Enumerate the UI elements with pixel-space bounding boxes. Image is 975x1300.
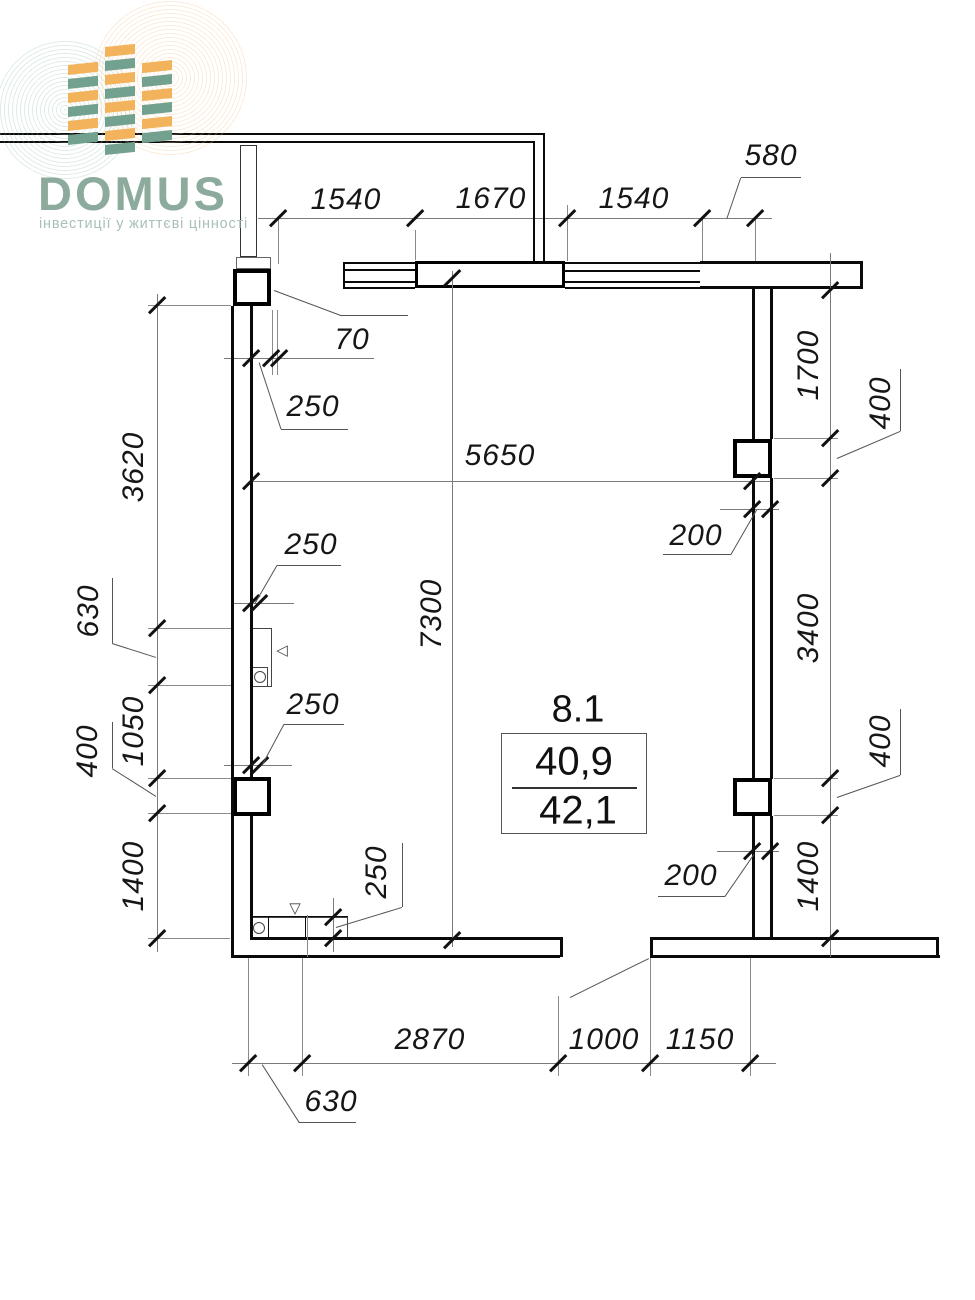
shelf-200l [658, 896, 725, 897]
dim-room-height: 7300 [415, 579, 449, 650]
wall-top-right-cap [860, 261, 863, 289]
dim-wall-bottom: 250 [360, 845, 394, 898]
dim-bottom-4: 630 [304, 1085, 357, 1119]
ext-t2 [415, 230, 416, 260]
room-area-lower: 42,1 [539, 789, 617, 834]
column-left-lower [233, 777, 271, 816]
shelf-70 [341, 315, 408, 316]
leader-630b [261, 1064, 299, 1123]
dimline-left [157, 294, 158, 952]
ext-70b [277, 310, 278, 375]
ext-t1 [278, 218, 279, 264]
ext-b5 [750, 958, 751, 1076]
shelf-250b [402, 843, 403, 907]
wall-bottom-left-outer [231, 955, 560, 958]
partition-inner-b [770, 478, 773, 779]
wall-bottom-right-cap [650, 937, 653, 957]
dim-left-5: 1400 [117, 841, 151, 912]
dimline-bottom [232, 1063, 776, 1064]
shelf-250m [277, 565, 341, 566]
dimline-top [258, 218, 772, 219]
wall-bottom-right-outer [650, 955, 940, 958]
dim-right-5: 1400 [792, 841, 826, 912]
logo-tagline: інвестиції у життєві цінності [39, 216, 248, 232]
wall-left-inner-a [250, 306, 253, 777]
shelf-400l [112, 722, 113, 768]
balcony-right-inner [533, 141, 535, 262]
shelf-630b [299, 1122, 356, 1123]
partition-outer-a [752, 288, 755, 439]
shelf-250u [281, 429, 348, 430]
shelf-580 [741, 177, 801, 178]
wall-bottom-left-inner [250, 937, 560, 940]
ext-b1 [248, 958, 249, 1076]
dim-top-3: 1540 [599, 182, 670, 216]
ext-l4 [148, 778, 233, 779]
balcony-right-outer [543, 133, 545, 262]
dim-right-2: 400 [864, 376, 898, 429]
column-top-left [233, 269, 271, 306]
column-right-upper [733, 439, 772, 478]
wall-top-right-inner [700, 286, 860, 289]
dim-partition-upper: 200 [669, 519, 722, 553]
window1-l3 [343, 281, 415, 283]
wall-left-inner-b [250, 816, 253, 938]
dim-top-2: 1670 [456, 182, 527, 216]
ext-l2 [148, 628, 233, 629]
dim-bottom-1: 2870 [395, 1023, 466, 1057]
room-number: 8.1 [552, 689, 605, 732]
leader-400ru [837, 431, 901, 459]
dim-left-2: 630 [72, 584, 106, 637]
dimline-room-width [251, 481, 770, 482]
wall-bottom-left-cap [560, 937, 563, 957]
window1-l2 [343, 269, 415, 271]
ext-l6 [148, 938, 230, 939]
ext-b4 [650, 958, 651, 1076]
leader-400rl [837, 775, 901, 798]
leader-200l [724, 854, 754, 897]
dim-partition-lower: 200 [664, 859, 717, 893]
shelf-400rl [900, 709, 901, 775]
shelf-200u [663, 554, 731, 555]
fixture-divider-2 [305, 917, 306, 938]
dim-wall-upper: 250 [286, 390, 339, 424]
leader-door-opening [570, 958, 649, 998]
leader-250l [261, 724, 284, 766]
wall-bottom-right-inner [650, 937, 938, 940]
wall-left-outer [231, 306, 234, 957]
floor-plan-canvas: DOMUS інвестиції у життєві цінності ◁ ▽ … [0, 0, 975, 1300]
dim-right-3: 3400 [792, 593, 826, 664]
riser-sill [236, 257, 271, 269]
leader-580 [726, 178, 741, 219]
ext-t4 [702, 218, 703, 261]
dim-top-1: 1540 [311, 183, 382, 217]
window2-l3 [565, 281, 700, 283]
window1-l4 [343, 287, 415, 289]
partition-inner-c [770, 816, 773, 938]
dim-wall-middle: 250 [284, 528, 337, 562]
dim-column-offset: 70 [334, 323, 369, 357]
window1-l1 [343, 262, 415, 264]
ext-t5 [755, 218, 756, 261]
dim-room-width: 5650 [465, 439, 536, 473]
ext-l1 [148, 305, 231, 306]
window2-l2 [565, 270, 700, 272]
room-area-upper: 40,9 [535, 740, 613, 785]
dimline-room-height [452, 271, 453, 947]
building-icon [58, 38, 188, 173]
shelf-400ru [900, 369, 901, 431]
window1-cap [343, 262, 345, 289]
dim-top-4: 580 [744, 139, 797, 173]
shelf-250l [284, 724, 344, 725]
top-wall-lintel [415, 261, 565, 288]
level-marker-down-icon: ▽ [289, 899, 301, 917]
fixture-divider-1 [268, 917, 269, 938]
column-right-lower [733, 778, 772, 816]
window2-l4 [565, 287, 700, 289]
leader-250u [258, 362, 281, 429]
dim-right-1: 1700 [792, 330, 826, 401]
dim-bottom-2: 1000 [569, 1023, 640, 1057]
window2-l1 [565, 262, 700, 264]
leader-250m [254, 565, 277, 604]
leader-70 [274, 290, 342, 316]
partition-outer-b [752, 478, 755, 779]
fixture-left-wall-valve-icon [254, 671, 266, 683]
dim-left-4: 400 [71, 724, 105, 777]
ext-fix [307, 915, 308, 957]
partition-inner-a [770, 288, 773, 439]
level-marker-left-icon: ◁ [276, 641, 288, 659]
fixture-bottom-wall-valve-icon [253, 922, 265, 934]
wall-top-right-outer [700, 261, 860, 264]
dimline-wall-bottom [333, 898, 334, 952]
dimline-right [830, 253, 831, 957]
dimline-wall-middle [233, 603, 294, 604]
ext-b2 [302, 958, 303, 1076]
ext-l3 [148, 685, 233, 686]
leader-630l [112, 643, 156, 658]
partition-outer-c [752, 816, 755, 938]
shelf-630l [112, 578, 113, 643]
dim-left-3: 1050 [117, 696, 151, 767]
dim-bottom-3: 1150 [666, 1023, 735, 1057]
dim-left-1: 3620 [117, 432, 151, 503]
logo-wordmark: DOMUS [38, 170, 228, 217]
dim-wall-lower: 250 [286, 688, 339, 722]
ext-l5 [148, 813, 233, 814]
dim-right-4: 400 [864, 714, 898, 767]
logo: DOMUS інвестиції у життєві цінності [0, 10, 260, 250]
wall-bottom-right-endcap [936, 937, 939, 957]
